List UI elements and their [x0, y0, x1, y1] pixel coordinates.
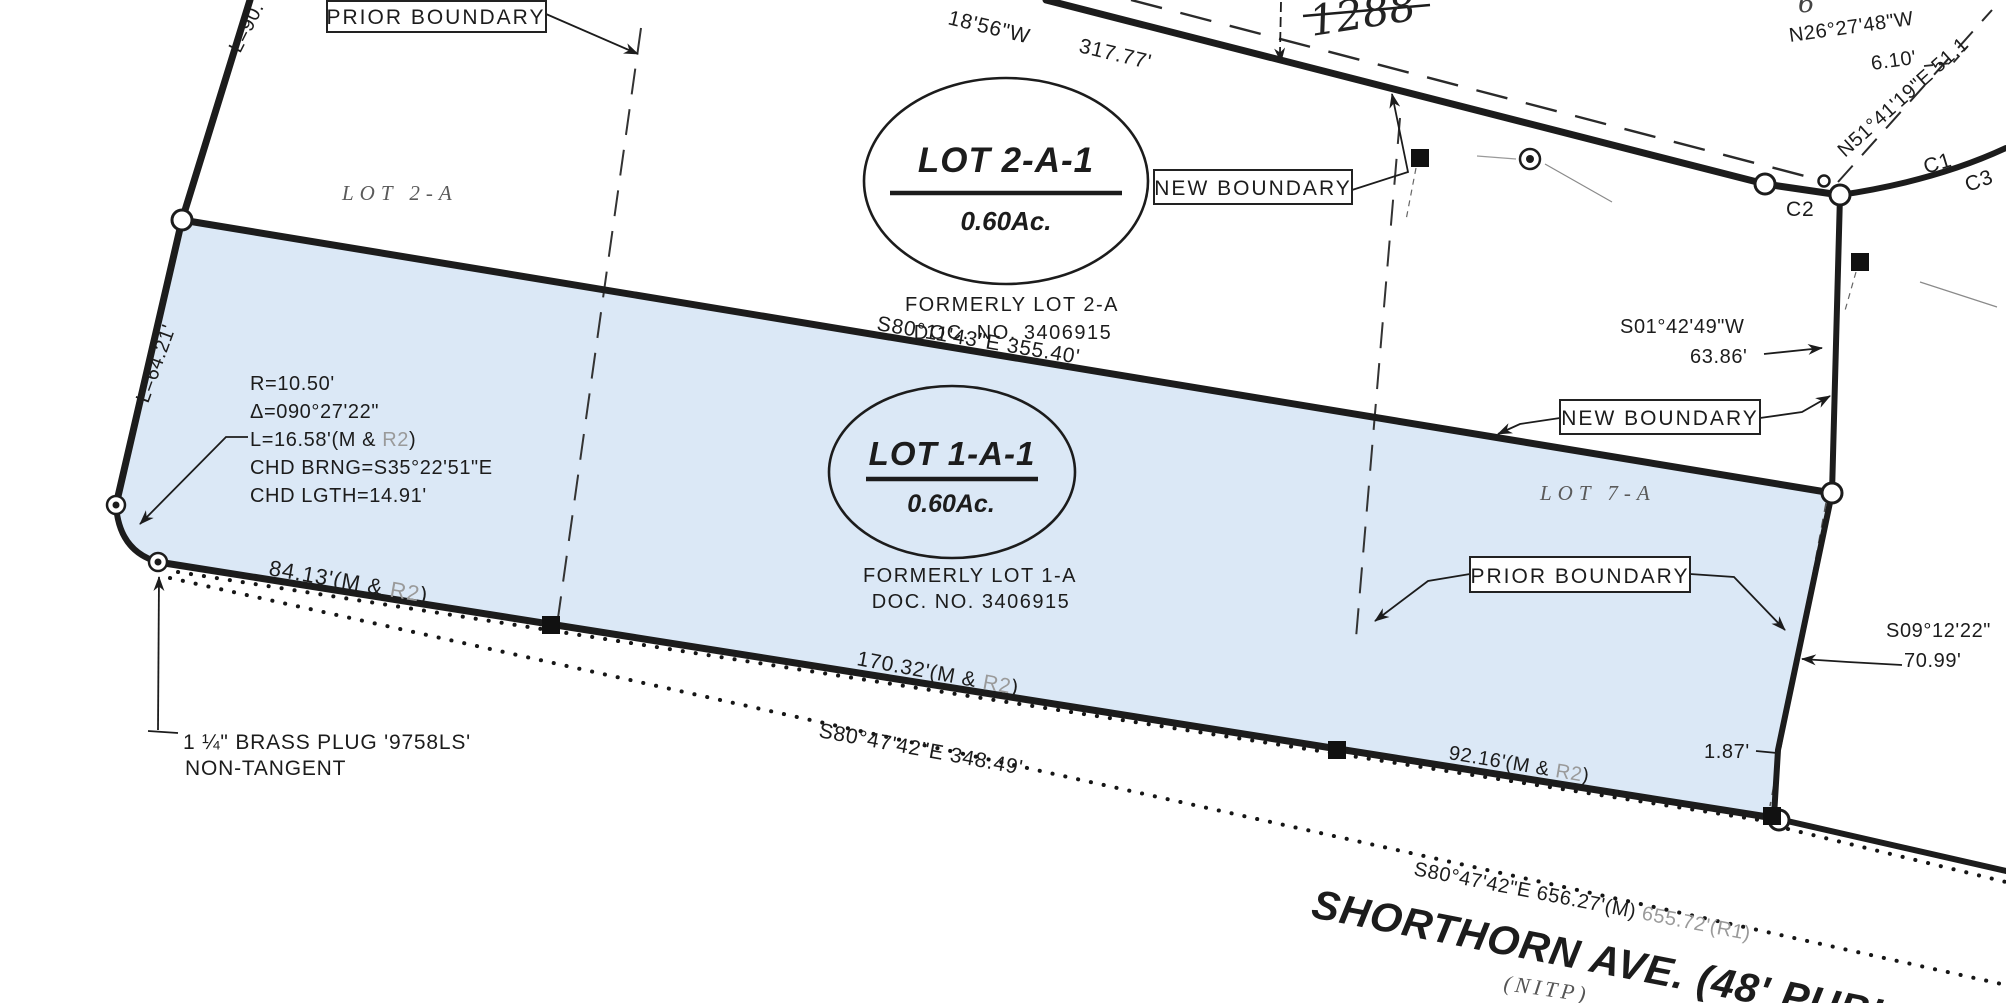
lot-2-a-1-title: LOT 2-A-1	[918, 141, 1094, 180]
monument-square-north	[1411, 149, 1429, 167]
handwritten-note-2: 6	[1798, 0, 1815, 19]
curve-note-chord-bearing: CHD BRNG=S35°22'51"E	[250, 457, 493, 479]
lot-1-a-1-doc: DOC. NO. 3406915	[872, 591, 1071, 613]
monument-square-south-1	[542, 616, 560, 634]
lot-1-a-1-area: 0.60Ac.	[907, 490, 995, 518]
monument-square-se-corner	[1763, 807, 1781, 825]
corner-monument-circle-nw	[172, 210, 192, 230]
prior-boundary-top-label: PRIOR BOUNDARY	[327, 6, 546, 29]
brass-plug-note-line2: NON-TANGENT	[185, 757, 346, 780]
monument-square-east	[1851, 253, 1869, 271]
dim-s01-42-49: S01°42'49"W	[1620, 316, 1744, 338]
dim-1-87: 1.87'	[1704, 741, 1750, 763]
found-pin-inner-north	[1526, 155, 1534, 163]
monument-small-circle	[1819, 176, 1830, 187]
corner-monument-circle-north	[1755, 174, 1775, 194]
lot-2-a-1-area: 0.60Ac.	[960, 206, 1051, 236]
lot-1-a-1-formerly: FORMERLY LOT 1-A	[863, 565, 1077, 587]
curve-note-chord-length: CHD LGTH=14.91'	[250, 485, 427, 507]
plat-drawing: PRIOR BOUNDARY NEW BOUNDARY NEW BOUNDARY…	[0, 0, 2006, 1003]
lot-1-a-1-title: LOT 1-A-1	[869, 435, 1036, 472]
curve-note-delta: Δ=090°27'22"	[250, 401, 379, 423]
curve-note-length: L=16.58'(M & R2)	[250, 429, 416, 451]
lot-7-a-label: LOT 7-A	[1539, 481, 1656, 505]
lot-2-a-1-formerly: FORMERLY LOT 2-A	[905, 294, 1119, 316]
leader-brass-plug	[158, 577, 159, 730]
brass-plug-note-line1: 1 ¼" BRASS PLUG '9758LS'	[183, 731, 471, 754]
found-pin-inner-west	[113, 502, 120, 509]
dim-63-86: 63.86'	[1690, 346, 1747, 368]
new-boundary-top-label: NEW BOUNDARY	[1154, 177, 1351, 200]
curve-note-radius: R=10.50'	[250, 373, 335, 395]
corner-monument-circle-c2	[1830, 185, 1850, 205]
dim-70-99: 70.99'	[1904, 650, 1961, 672]
plat-svg: PRIOR BOUNDARY NEW BOUNDARY NEW BOUNDARY…	[0, 0, 2006, 1003]
monument-square-south-2	[1328, 741, 1346, 759]
corner-monument-circle-ne	[1822, 483, 1842, 503]
prior-boundary-bottom-label: PRIOR BOUNDARY	[1471, 565, 1690, 588]
dim-s09-12-22: S09°12'22"	[1886, 620, 1991, 642]
new-boundary-right-label: NEW BOUNDARY	[1561, 407, 1758, 430]
found-pin-inner-sw	[155, 559, 162, 566]
lot-2-a-label: LOT 2-A	[341, 181, 458, 205]
curve-label-c2: C2	[1786, 198, 1814, 221]
